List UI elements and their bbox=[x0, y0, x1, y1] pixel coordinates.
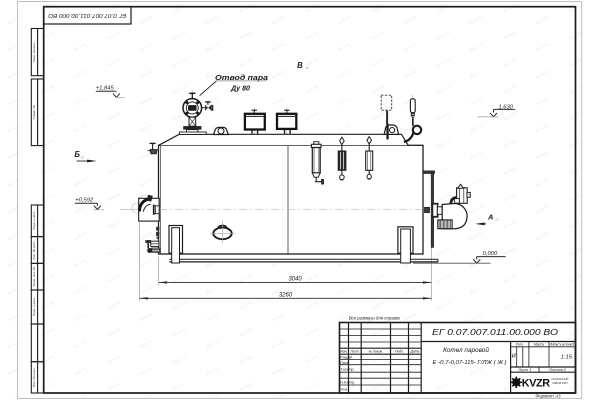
svg-text:Подп. и дата: Подп. и дата bbox=[32, 211, 36, 230]
svg-text:Справ. №: Справ. № bbox=[32, 105, 36, 120]
svg-text:Листов 2: Листов 2 bbox=[548, 368, 567, 372]
svg-text:1:15: 1:15 bbox=[561, 354, 573, 360]
svg-text:20: 20 bbox=[494, 217, 499, 221]
svg-text:Дата: Дата bbox=[409, 349, 419, 353]
svg-text:И: И bbox=[512, 354, 516, 360]
svg-text:Пров.: Пров. bbox=[340, 361, 349, 365]
svg-text:20: 20 bbox=[304, 66, 309, 70]
svg-text:Масса: Масса bbox=[534, 343, 544, 347]
svg-text:Инв. № подл.: Инв. № подл. bbox=[32, 368, 36, 387]
svg-text:Формат А3: Формат А3 bbox=[535, 394, 561, 399]
svg-text:ЕГ 0.07.007.011.00.000 ВО: ЕГ 0.07.007.011.00.000 ВО bbox=[432, 327, 559, 337]
svg-text:Все размеры для справок: Все размеры для справок bbox=[349, 315, 401, 321]
svg-text:Изм.: Изм. bbox=[340, 349, 347, 353]
svg-text:№ докум.: № докум. bbox=[369, 349, 384, 353]
svg-text:Т.контр.: Т.контр. bbox=[340, 368, 354, 372]
svg-text:Перв. примен.: Перв. примен. bbox=[32, 42, 36, 63]
svg-text:Взам. инв. №: Взам. инв. № bbox=[32, 266, 36, 286]
svg-text:20: 20 bbox=[80, 156, 85, 160]
svg-text:Е -0,7-0,07-115- Г/ЛЖ ( Ж ): Е -0,7-0,07-115- Г/ЛЖ ( Ж ) bbox=[433, 360, 507, 366]
svg-text:ЗАВОД РЭП: ЗАВОД РЭП bbox=[552, 381, 567, 385]
svg-text:Лист: Лист bbox=[350, 349, 360, 353]
svg-text:КОТЕЛЬНЫЙ: КОТЕЛЬНЫЙ bbox=[551, 377, 568, 381]
svg-text:Масштаб: Масштаб bbox=[550, 343, 574, 347]
svg-text:KVZR: KVZR bbox=[522, 377, 550, 389]
svg-text:Подп.: Подп. bbox=[395, 349, 404, 353]
svg-text:А: А bbox=[487, 213, 493, 222]
svg-text:Н.контр.: Н.контр. bbox=[340, 381, 355, 385]
svg-text:Подп. и дата: Подп. и дата bbox=[32, 298, 36, 317]
svg-text:Разраб.: Разраб. bbox=[340, 356, 353, 360]
svg-text:Лист 1: Лист 1 bbox=[517, 368, 531, 372]
svg-text:3040: 3040 bbox=[288, 276, 302, 282]
svg-text:Инв. № дубл.: Инв. № дубл. bbox=[32, 240, 36, 259]
svg-text:Утв.: Утв. bbox=[340, 388, 348, 392]
svg-text:ЕГ 0.07.007.011.00.000 ВО: ЕГ 0.07.007.011.00.000 ВО bbox=[48, 12, 127, 18]
svg-text:Котел паровой: Котел паровой bbox=[443, 346, 489, 354]
svg-text:0,000: 0,000 bbox=[483, 251, 498, 257]
svg-text:3260: 3260 bbox=[279, 292, 293, 298]
svg-text:В: В bbox=[297, 61, 303, 70]
svg-text:Ду 80: Ду 80 bbox=[230, 85, 250, 92]
svg-text:Лит.: Лит. bbox=[515, 343, 524, 347]
